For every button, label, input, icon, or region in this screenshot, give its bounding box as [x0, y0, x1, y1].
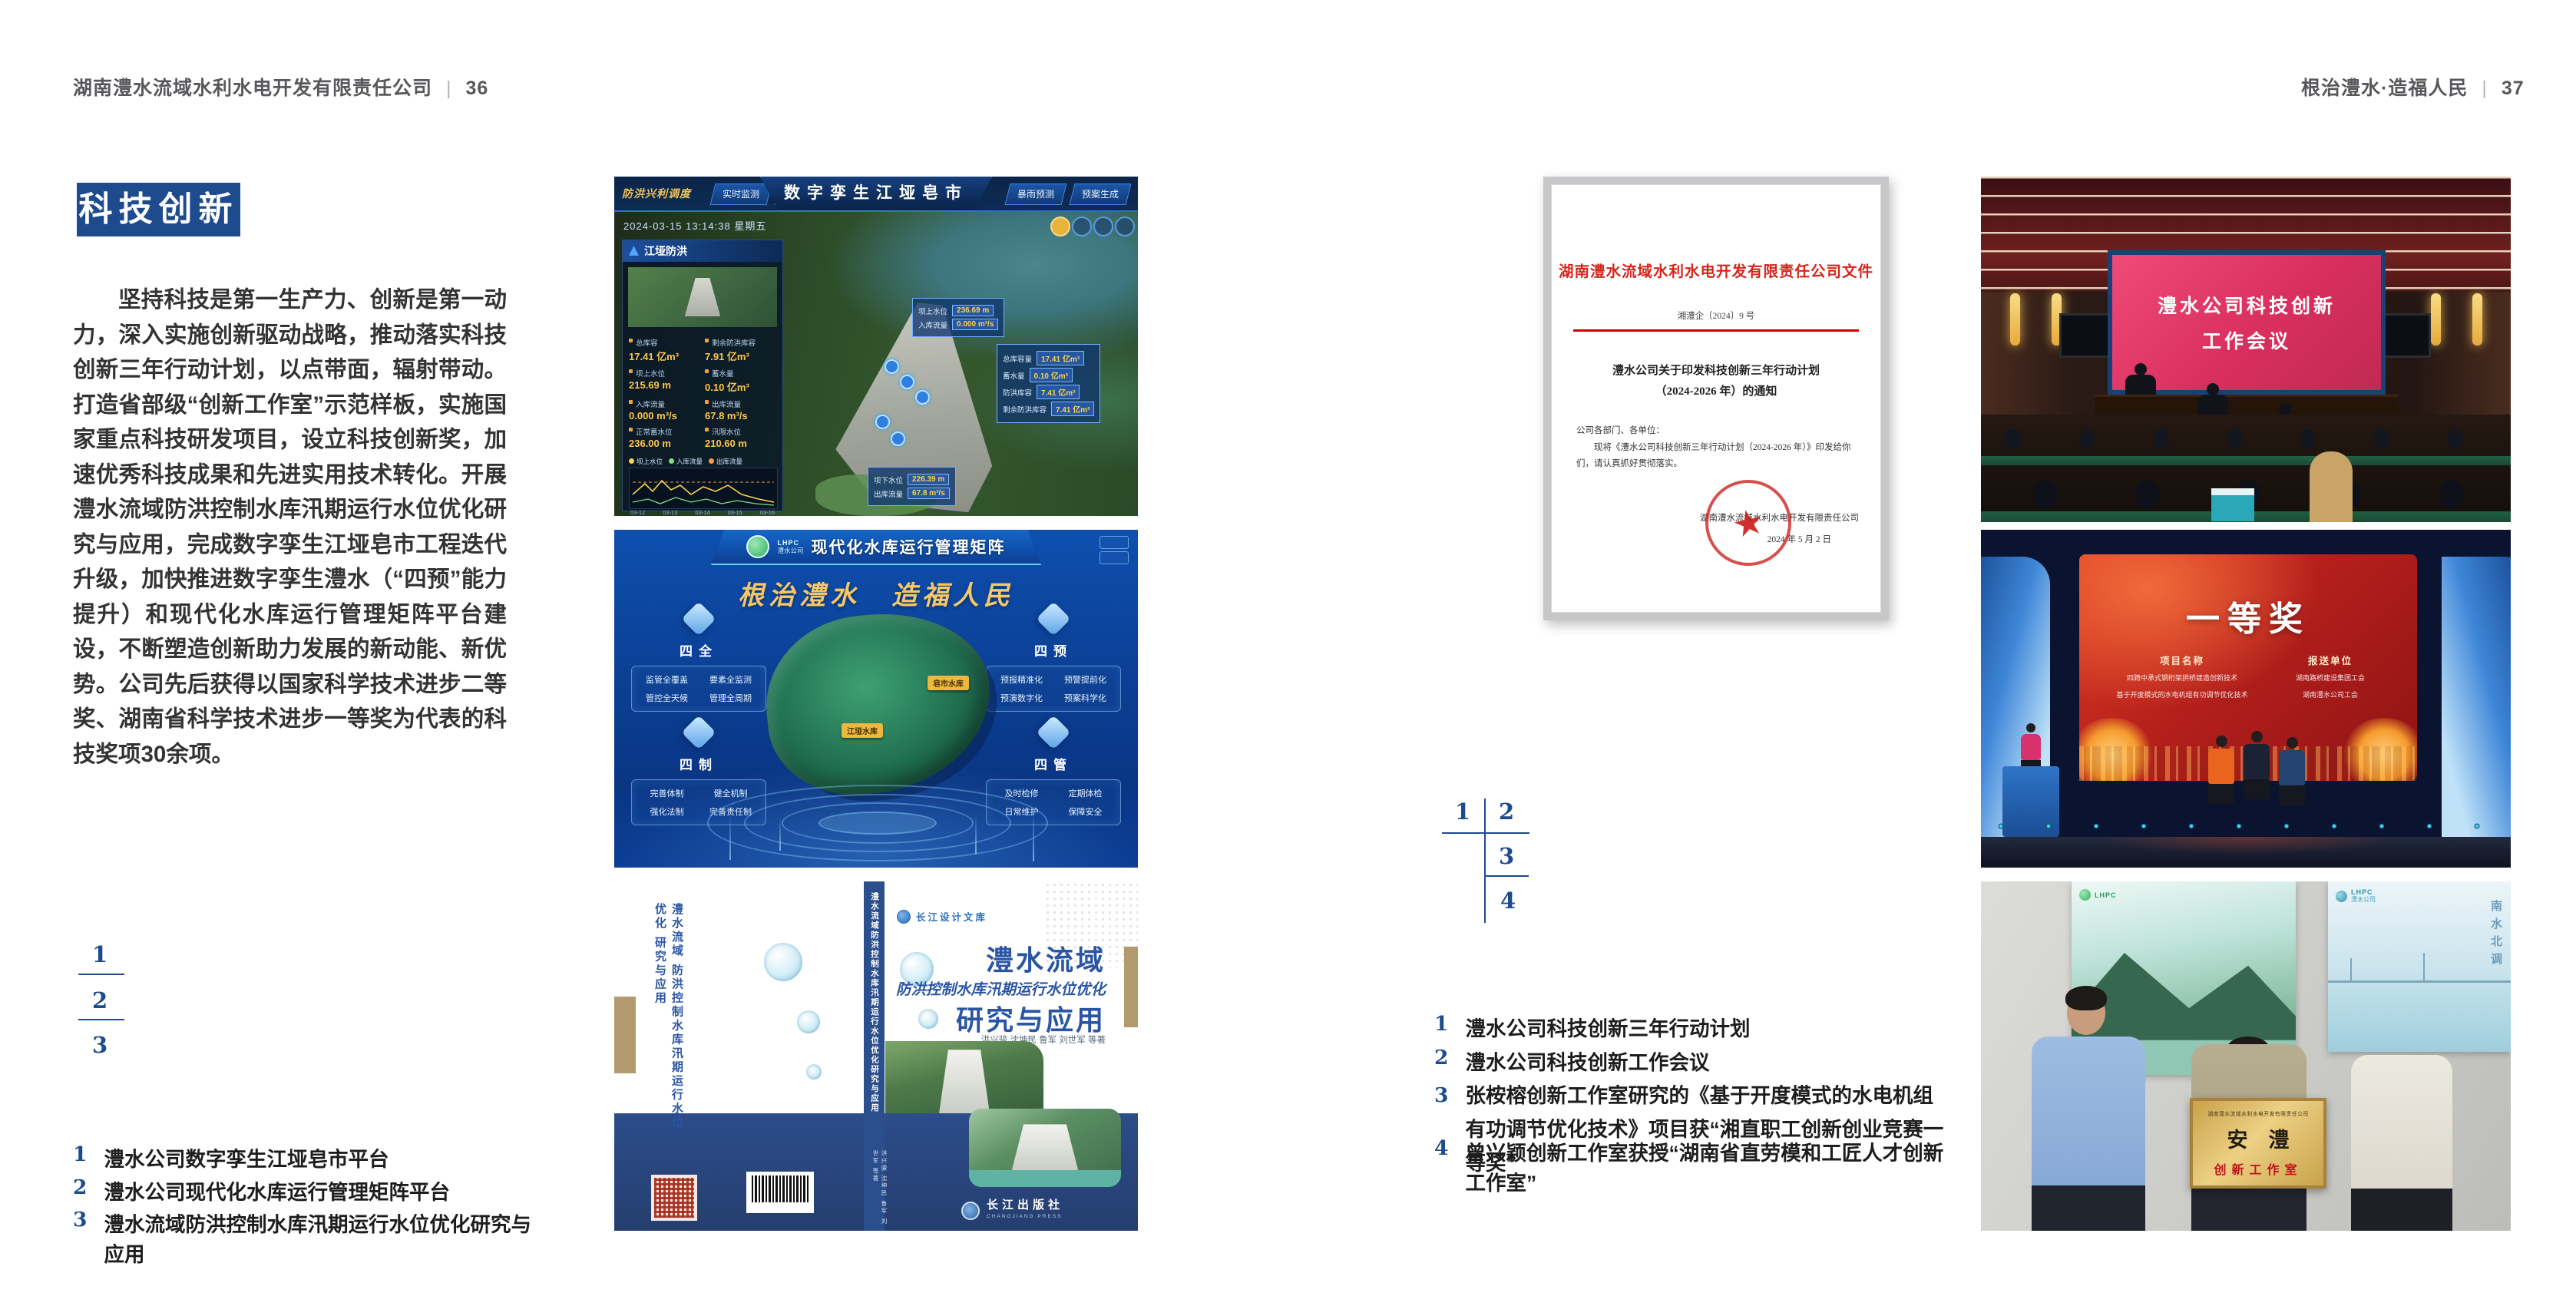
metric: 汛限水位210.60 m — [705, 426, 776, 449]
lhpc-logo-icon — [746, 535, 769, 558]
dam-shape — [1011, 1124, 1078, 1171]
tan-accent-block — [614, 997, 636, 1073]
dashboard-title: 数字孪生江垭皂市 — [760, 177, 992, 211]
metric: 正常蓄水位236.00 m — [629, 426, 700, 449]
ripple-platform — [707, 785, 1045, 858]
plaque-company-line: 湖南澧水流域水利水电开发有限责任公司 — [2207, 1109, 2308, 1117]
tab-plan-generate: 预案生成 — [1070, 184, 1132, 205]
dashboard-datetime: 2024-03-15 13:14:38 星期五 — [623, 218, 766, 233]
group-title: 四预 — [986, 640, 1121, 660]
body-paragraph: 坚持科技是第一生产力、创新是第一动力，深入实施创新驱动战略，推动落实科技创新三年… — [73, 283, 507, 772]
metric: 总库容17.41 亿m³ — [629, 337, 700, 363]
panel-title-flood: 江垭防洪 — [623, 240, 782, 262]
caption-number: 4 — [1434, 1136, 1448, 1160]
light-pillar — [1033, 811, 1034, 861]
group-title: 四全 — [631, 640, 766, 660]
caption-row: 3 澧水流域防洪控制水库汛期运行水位优化研究与应用 — [73, 1208, 549, 1268]
screen-title-line1: 澧水公司科技创新 — [2158, 291, 2336, 319]
front-title-main: 澧水流域 — [986, 938, 1106, 978]
logo-abbr: LHPC — [2351, 889, 2376, 896]
left-data-panel: 江垭防洪 总库容17.41 亿m³ 剩余防洪库容7.91 亿m³ 坝上水位215… — [622, 240, 783, 511]
map-label-zaoshi: 皂市水库 — [928, 676, 969, 690]
logo-name: 澧水公司 — [777, 547, 803, 554]
audience-row — [1981, 416, 2511, 459]
red-seal-icon: ★ — [1698, 472, 1800, 574]
publisher-logo-icon — [961, 1202, 980, 1220]
settings-icon — [1115, 217, 1135, 236]
audience-area — [1981, 415, 2511, 522]
poster-vertical-text: 南水北调 — [2488, 900, 2505, 1030]
dam-photo-1 — [885, 1041, 1043, 1113]
caption-number: 2 — [73, 1175, 87, 1199]
index-divider — [78, 974, 124, 975]
back-vertical-title: 澧水流域 防洪控制水库汛期运行水位优化 研究与应用 — [651, 903, 685, 1133]
unit-name: 湖南路桥建设集团工会 — [2273, 673, 2388, 683]
document-title: 湖南澧水流域水利水电开发有限责任公司文件 — [1552, 259, 1880, 281]
plaque-title: 安 澧 — [2227, 1123, 2290, 1153]
person-legs — [2351, 1189, 2452, 1231]
platform-title: 现代化水库运行管理矩阵 — [812, 535, 1006, 558]
metric: 坝上水位215.69 m — [629, 368, 700, 394]
group-siyu: 四预 预报精准化预警提前化 预演数字化预案科学化 — [986, 607, 1121, 712]
running-head-left: 湖南澧水流域水利水电开发有限责任公司 | 36 — [73, 73, 488, 101]
bubble-decor — [806, 1064, 822, 1080]
dam-shape — [939, 1050, 990, 1113]
figure-index-1: 1 — [1455, 798, 1470, 825]
gate-marker-icon — [900, 375, 914, 389]
barcode — [746, 1172, 814, 1213]
qr-code — [651, 1175, 697, 1221]
figure-meeting-photo: 澧水公司科技创新 工作会议 — [1981, 177, 2511, 522]
gate-marker-icon — [915, 390, 930, 405]
figure-official-document: 湖南澧水流域水利水电开发有限责任公司文件 湘澧企〔2024〕9 号 澧水公司关于… — [1543, 177, 1889, 620]
collapse-button-icon — [1100, 536, 1129, 549]
project-name: 基于开度模式的水电机组有功调节优化技术 — [2116, 690, 2248, 699]
dam-photo-2 — [969, 1109, 1121, 1187]
metric: 出库流量67.8 m³/s — [705, 398, 776, 422]
group-siquan: 四全 监管全覆盖要素全监测 管控全天候管理全周期 — [631, 607, 766, 712]
person-legs — [2191, 1187, 2306, 1231]
series-mark: 长江设计文库 — [897, 909, 987, 924]
bridge-pylon — [2423, 953, 2425, 980]
figure-award-ceremony: 一等奖 项目名称 四跨中承式钢桁架拱桥建造创新技术 基于开度模式的水电机组有功调… — [1981, 530, 2511, 868]
caption-number: 3 — [1434, 1079, 1448, 1113]
publisher-name-en: CHANGJIANG PRESS — [987, 1211, 1063, 1222]
globe-logo-icon — [897, 910, 911, 924]
magazine-spread: 湖南澧水流域水利水电开发有限责任公司 | 36 科技创新 坚持科技是第一生产力、… — [0, 0, 2576, 1306]
caption-text: 澧水流域防洪控制水库汛期运行水位优化研究与应用 — [104, 1208, 549, 1268]
cube-icon — [681, 601, 716, 636]
bridge-deck — [2328, 980, 2511, 983]
figure-index-2: 2 — [92, 987, 107, 1013]
person-torso-white — [2351, 1055, 2452, 1192]
gate-marker-icon — [891, 431, 905, 446]
person-legs — [2032, 1185, 2145, 1231]
index-divider — [1442, 832, 1529, 834]
header-divider: | — [2482, 78, 2488, 100]
project-column: 项目名称 四跨中承式钢桁架拱桥建造创新技术 基于开度模式的水电机组有功调节优化技… — [2116, 653, 2248, 707]
unit-name: 湖南澧水公司工会 — [2273, 690, 2388, 699]
gate-marker-icon — [875, 415, 890, 429]
chart-legend: 坝上水位入库流量出库流量 — [623, 454, 782, 466]
metric: 入库流量0.000 m³/s — [629, 398, 700, 422]
presenter-suit — [2244, 731, 2270, 799]
group-panel: 监管全覆盖要素全监测 管控全天候管理全周期 — [631, 666, 766, 712]
series-name: 长江设计文库 — [916, 909, 987, 924]
workshop-plaque: 湖南澧水流域水利水电开发有限责任公司 安 澧 创新工作室 — [2190, 1098, 2326, 1189]
plaque-subtitle: 创新工作室 — [2214, 1159, 2302, 1178]
mountain-art — [2072, 934, 2296, 1040]
section-title-badge: 科技创新 — [77, 183, 240, 236]
figure-index-3: 3 — [1499, 843, 1514, 869]
column-header: 项目名称 — [2116, 653, 2248, 667]
awardee-blue — [2279, 737, 2305, 805]
person-head — [2067, 990, 2105, 1035]
caption-text: 澧水公司科技创新三年行动计划 — [1465, 1012, 1750, 1042]
user-icon — [1050, 217, 1070, 236]
cube-icon — [681, 715, 716, 749]
header-divider: | — [446, 78, 452, 100]
wall-lamp-icon — [2472, 293, 2482, 346]
attendee-beige-coat — [2310, 451, 2353, 522]
page-number: 37 — [2502, 78, 2525, 100]
gate-marker-icon — [885, 359, 899, 374]
caption-row: 4 曾兴颖创新工作室获授“湖南省直劳模和工匠人才创新工作室” — [1434, 1136, 1950, 1196]
awardee-orange — [2208, 736, 2234, 804]
document-salutation: 公司各部门、各单位： — [1576, 423, 1665, 439]
expand-button-icon — [1100, 551, 1129, 564]
layers-icon — [1072, 217, 1092, 236]
chart-x-axis: 03-1203-1303-1403-1503-16 — [623, 509, 782, 516]
tan-accent-block — [1124, 947, 1138, 1027]
document-subject-2: （2024-2026 年）的通知 — [1552, 382, 1880, 398]
figure-workshop-group-photo: LHPC LHPC 澧水公司 南水北调 — [1981, 881, 2511, 1231]
bridge-pylon — [2350, 958, 2352, 980]
reflective-floor — [1981, 837, 2511, 868]
group-panel: 预报精准化预警提前化 预演数字化预案科学化 — [986, 666, 1121, 712]
tab-rain-forecast: 暴雨预测 — [1005, 184, 1067, 205]
callout-upstream: 坝上水位236.69 m 入库流量0.000 m³/s — [912, 298, 1004, 337]
flood-metrics: 总库容17.41 亿m³ 剩余防洪库容7.91 亿m³ 坝上水位215.69 m… — [623, 332, 782, 454]
unit-column: 报送单位 湖南路桥建设集团工会 湖南澧水公司工会 — [2273, 653, 2388, 707]
back-title-tail: 研究与应用 — [653, 936, 666, 1005]
tissue-box — [2211, 488, 2254, 521]
dam-shape — [685, 278, 721, 316]
bubble-decor — [918, 1009, 938, 1029]
poster-logo: LHPC 澧水公司 — [2336, 889, 2376, 903]
front-title-sub: 防洪控制水库汛期运行水位优化 — [896, 977, 1106, 999]
spine-title: 澧水流域防洪控制水库汛期运行水位优化研究与应用 — [869, 892, 881, 1146]
light-pillar — [729, 814, 731, 860]
figure-index-2: 2 — [1499, 798, 1514, 825]
red-rule — [1573, 329, 1859, 332]
caption-text: 澧水公司科技创新工作会议 — [1465, 1046, 1709, 1076]
publisher-mark: 长江出版社 CHANGJIANG PRESS — [961, 1199, 1063, 1222]
caption-row: 1 澧水公司科技创新三年行动计划 — [1434, 1012, 1941, 1042]
light-pillar — [975, 814, 977, 854]
running-head-right: 根治澧水·造福人民 | 37 — [2301, 73, 2525, 101]
tab-realtime-monitor: 实时监测 — [710, 184, 772, 205]
basin-3d-map — [758, 603, 1000, 803]
caption-number: 1 — [73, 1142, 87, 1166]
bubble-decor — [797, 1010, 820, 1033]
document-number: 湘澧企〔2024〕9 号 — [1552, 309, 1880, 322]
person-torso-blue-polo — [2032, 1037, 2145, 1189]
group-title: 四制 — [631, 754, 766, 773]
figure-index-1: 1 — [92, 941, 107, 967]
platform-header: LHPC 澧水公司 现代化水库运行管理矩阵 — [711, 530, 1041, 565]
caption-number: 1 — [1434, 1012, 1448, 1036]
document-body: 现将《澧水公司科技创新三年行动计划（2024-2026 年）》印发给你们，请认真… — [1576, 440, 1857, 472]
back-title-main: 澧水流域 — [670, 903, 683, 958]
award-title: 一等奖 — [2079, 591, 2417, 640]
lhpc-logo-icon — [2079, 889, 2091, 901]
figure-book-cover: 澧水流域 防洪控制水库汛期运行水位优化 研究与应用 澧水流域防洪控制水库汛期运行… — [614, 881, 1138, 1231]
dam-thumbnail — [628, 267, 777, 327]
poster-logo: LHPC — [2079, 889, 2117, 901]
cube-icon — [1036, 601, 1070, 636]
caption-row: 2 澧水公司现代化水库运行管理矩阵平台 — [73, 1175, 534, 1205]
metric: 蓄水量0.10 亿m³ — [705, 368, 776, 394]
group-title: 四管 — [986, 754, 1121, 773]
cube-icon — [1036, 715, 1070, 749]
project-name: 四跨中承式钢桁架拱桥建造创新技术 — [2116, 673, 2248, 683]
logo-abbr: LHPC — [777, 539, 803, 547]
caption-text: 澧水公司数字孪生江垭皂市平台 — [104, 1142, 389, 1172]
publisher-name: 长江出版社 — [987, 1199, 1063, 1211]
logo-text: LHPC 澧水公司 — [777, 539, 803, 554]
wall-lamp-icon — [2010, 293, 2020, 346]
lhpc-logo-icon — [2336, 891, 2347, 902]
caption-row: 1 澧水公司数字孪生江垭皂市平台 — [73, 1142, 534, 1172]
figure-matrix-platform: LHPC 澧水公司 现代化水库运行管理矩阵 根治澧水 造福人民 四全 监管全覆盖… — [614, 530, 1138, 868]
index-divider — [1484, 875, 1529, 877]
figure-index-3: 3 — [92, 1032, 107, 1058]
caption-text: 澧水公司现代化水库运行管理矩阵平台 — [104, 1175, 450, 1205]
locate-icon — [1093, 217, 1113, 236]
caption-row: 2 澧水公司科技创新工作会议 — [1434, 1046, 1941, 1076]
figure-digital-twin-dashboard: 防洪兴利调度 实时监测 洪水预报 防汛预警 数字孪生江垭皂市 暴雨预测 预案生成… — [614, 177, 1138, 516]
logo-name: 澧水公司 — [2351, 896, 2376, 903]
caption-number: 2 — [1434, 1046, 1448, 1070]
panel-speaker — [2125, 375, 2156, 395]
projection-screen: 澧水公司科技创新 工作会议 — [2108, 250, 2386, 395]
light-pillar — [779, 817, 781, 851]
document-subject-1: 澧水公司关于印发科技创新三年行动计划 — [1552, 362, 1880, 378]
index-divider — [1484, 798, 1486, 923]
figure-index-4: 4 — [1500, 888, 1516, 914]
bubble-decor — [764, 943, 802, 981]
wall-poster-right: LHPC 澧水公司 南水北调 — [2328, 881, 2511, 1052]
caption-text: 曾兴颖创新工作室获授“湖南省直劳模和工匠人才创新工作室” — [1465, 1136, 1950, 1196]
motto: 根治澧水·造福人民 — [2301, 73, 2468, 101]
screen-title-line2: 工作会议 — [2202, 326, 2291, 354]
front-title-tail: 研究与应用 — [956, 998, 1106, 1038]
wall-lamp-icon — [2431, 293, 2441, 346]
water-level-chart — [629, 468, 778, 509]
tailwater — [969, 1170, 1121, 1187]
column-header: 报送单位 — [2273, 653, 2388, 667]
document-sheet: 湖南澧水流域水利水电开发有限责任公司文件 湘澧企〔2024〕9 号 澧水公司关于… — [1551, 184, 1881, 613]
water-art — [2328, 987, 2511, 1052]
spine-authors: 洪兴骏 沈坤民 鲁军 刘世军 等著 — [871, 1150, 888, 1227]
page-number: 36 — [466, 78, 489, 100]
callout-capacity: 总库容量17.41 亿m³ 蓄水量0.10 亿m³ 防洪库容7.41 亿m³ 剩… — [997, 344, 1100, 423]
map-label-jiangya: 江垭水库 — [842, 723, 883, 738]
metric: 剩余防洪库容7.91 亿m³ — [705, 337, 776, 363]
logo-abbr: LHPC — [2095, 891, 2117, 899]
index-divider — [78, 1019, 124, 1020]
nav-group-label: 防洪兴利调度 — [622, 177, 691, 210]
company-name: 湖南澧水流域水利水电开发有限责任公司 — [73, 73, 432, 101]
callout-downstream: 坝下水位226.39 m 出库流量67.8 m³/s — [868, 467, 956, 506]
caption-number: 3 — [73, 1208, 87, 1232]
panel-speaker — [2197, 395, 2228, 415]
